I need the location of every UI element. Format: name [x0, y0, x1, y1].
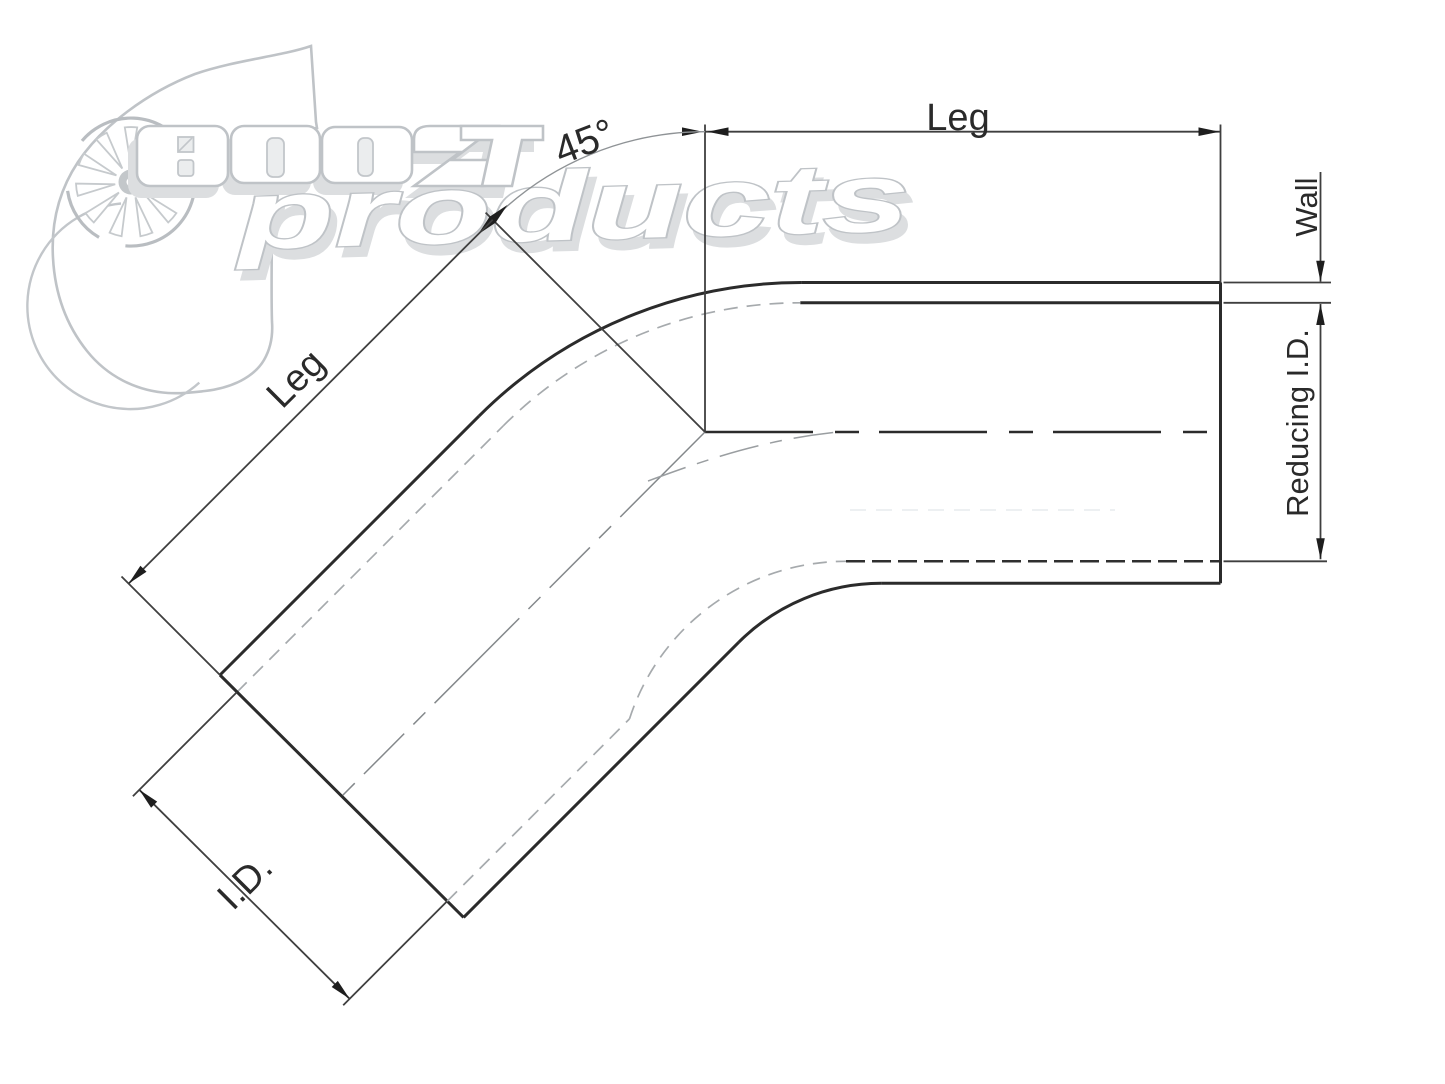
svg-text:Wall: Wall — [1289, 177, 1324, 236]
svg-text:Reducing I.D.: Reducing I.D. — [1280, 329, 1315, 517]
svg-text:Leg: Leg — [926, 97, 989, 139]
